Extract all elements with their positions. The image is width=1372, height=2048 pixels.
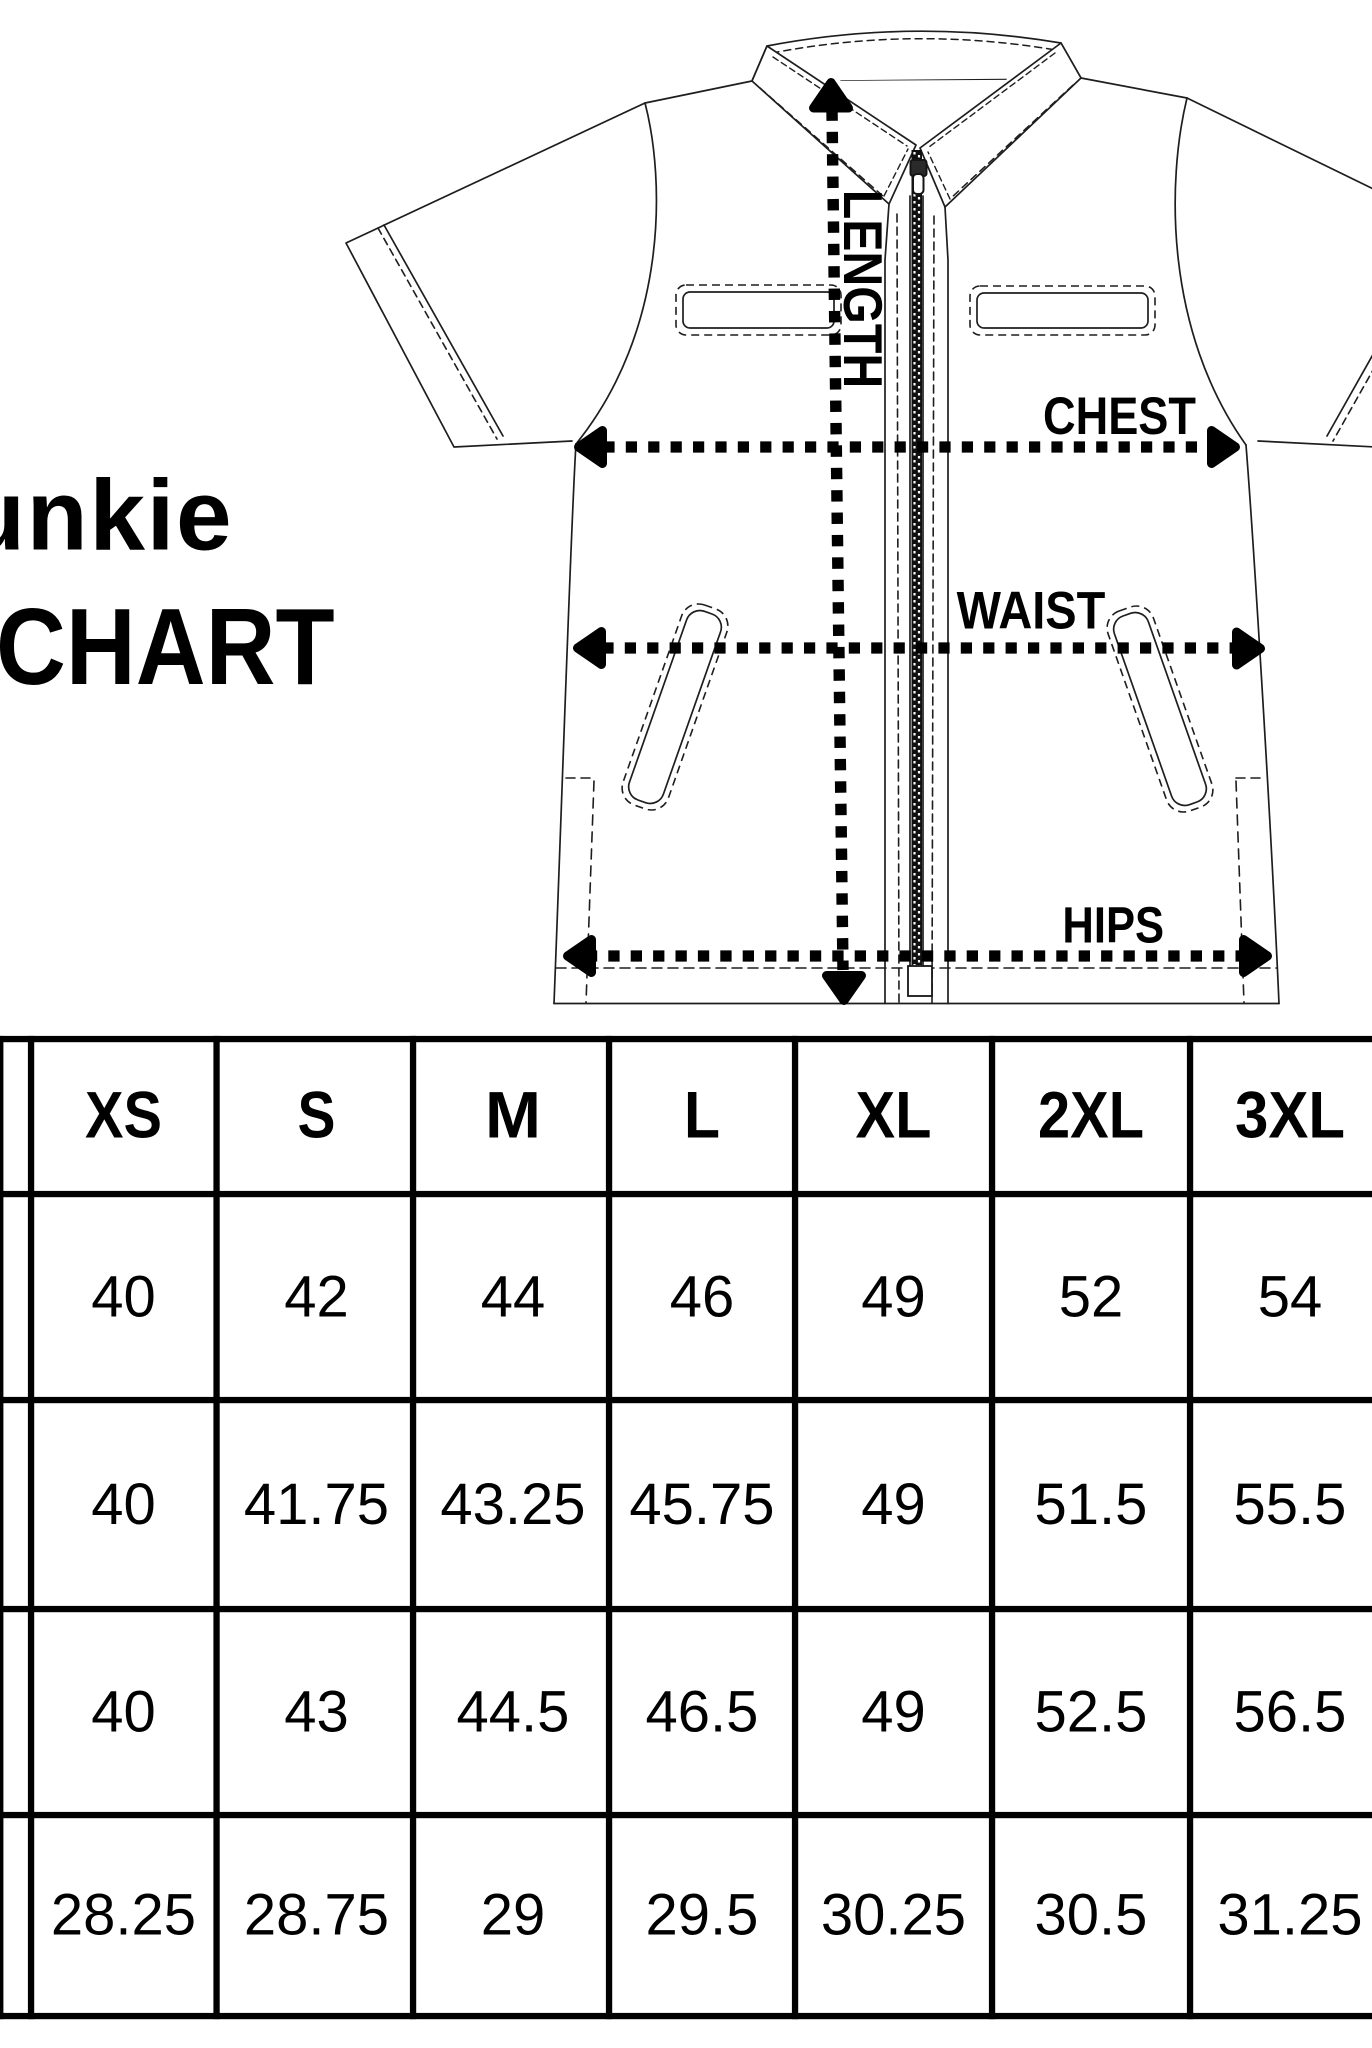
- svg-text:55.5: 55.5: [1234, 1472, 1347, 1537]
- svg-text:40: 40: [91, 1265, 156, 1330]
- svg-text:49: 49: [861, 1265, 926, 1330]
- svg-text:52.5: 52.5: [1035, 1680, 1148, 1745]
- svg-text:unkie: unkie: [0, 460, 233, 572]
- svg-text:3XL: 3XL: [1235, 1078, 1345, 1152]
- svg-text:29.5: 29.5: [646, 1883, 759, 1948]
- svg-text:WAIST: WAIST: [957, 581, 1106, 640]
- svg-text:52: 52: [1059, 1265, 1124, 1330]
- svg-text:44.5: 44.5: [457, 1680, 570, 1745]
- svg-text:29: 29: [481, 1883, 546, 1948]
- svg-text:40: 40: [91, 1680, 156, 1745]
- svg-text:40: 40: [91, 1472, 156, 1537]
- svg-text:49: 49: [861, 1680, 926, 1745]
- svg-text:28.75: 28.75: [244, 1883, 389, 1948]
- svg-text:42: 42: [284, 1265, 349, 1330]
- svg-text:43: 43: [284, 1680, 349, 1745]
- svg-text:L: L: [684, 1078, 720, 1152]
- svg-text:M: M: [485, 1078, 541, 1152]
- svg-text:31.25: 31.25: [1217, 1883, 1362, 1948]
- svg-text:30.25: 30.25: [821, 1883, 966, 1948]
- svg-text:HIPS: HIPS: [1062, 897, 1164, 954]
- svg-text:41.75: 41.75: [244, 1472, 389, 1537]
- svg-text:30.5: 30.5: [1035, 1883, 1148, 1948]
- svg-text:CHART: CHART: [0, 587, 335, 708]
- svg-text:49: 49: [861, 1472, 926, 1537]
- svg-text:XL: XL: [856, 1078, 932, 1152]
- svg-text:LENGTH: LENGTH: [832, 190, 893, 389]
- svg-text:54: 54: [1258, 1265, 1323, 1330]
- svg-text:XS: XS: [85, 1078, 162, 1152]
- svg-text:51.5: 51.5: [1035, 1472, 1148, 1537]
- svg-text:46.5: 46.5: [646, 1680, 759, 1745]
- svg-text:CHEST: CHEST: [1043, 387, 1196, 446]
- svg-text:2XL: 2XL: [1038, 1078, 1144, 1152]
- svg-text:43.25: 43.25: [440, 1472, 585, 1537]
- svg-text:44: 44: [481, 1265, 546, 1330]
- svg-text:S: S: [298, 1078, 336, 1152]
- svg-text:46: 46: [670, 1265, 735, 1330]
- svg-text:56.5: 56.5: [1234, 1680, 1347, 1745]
- svg-text:28.25: 28.25: [51, 1883, 196, 1948]
- svg-text:45.75: 45.75: [629, 1472, 774, 1537]
